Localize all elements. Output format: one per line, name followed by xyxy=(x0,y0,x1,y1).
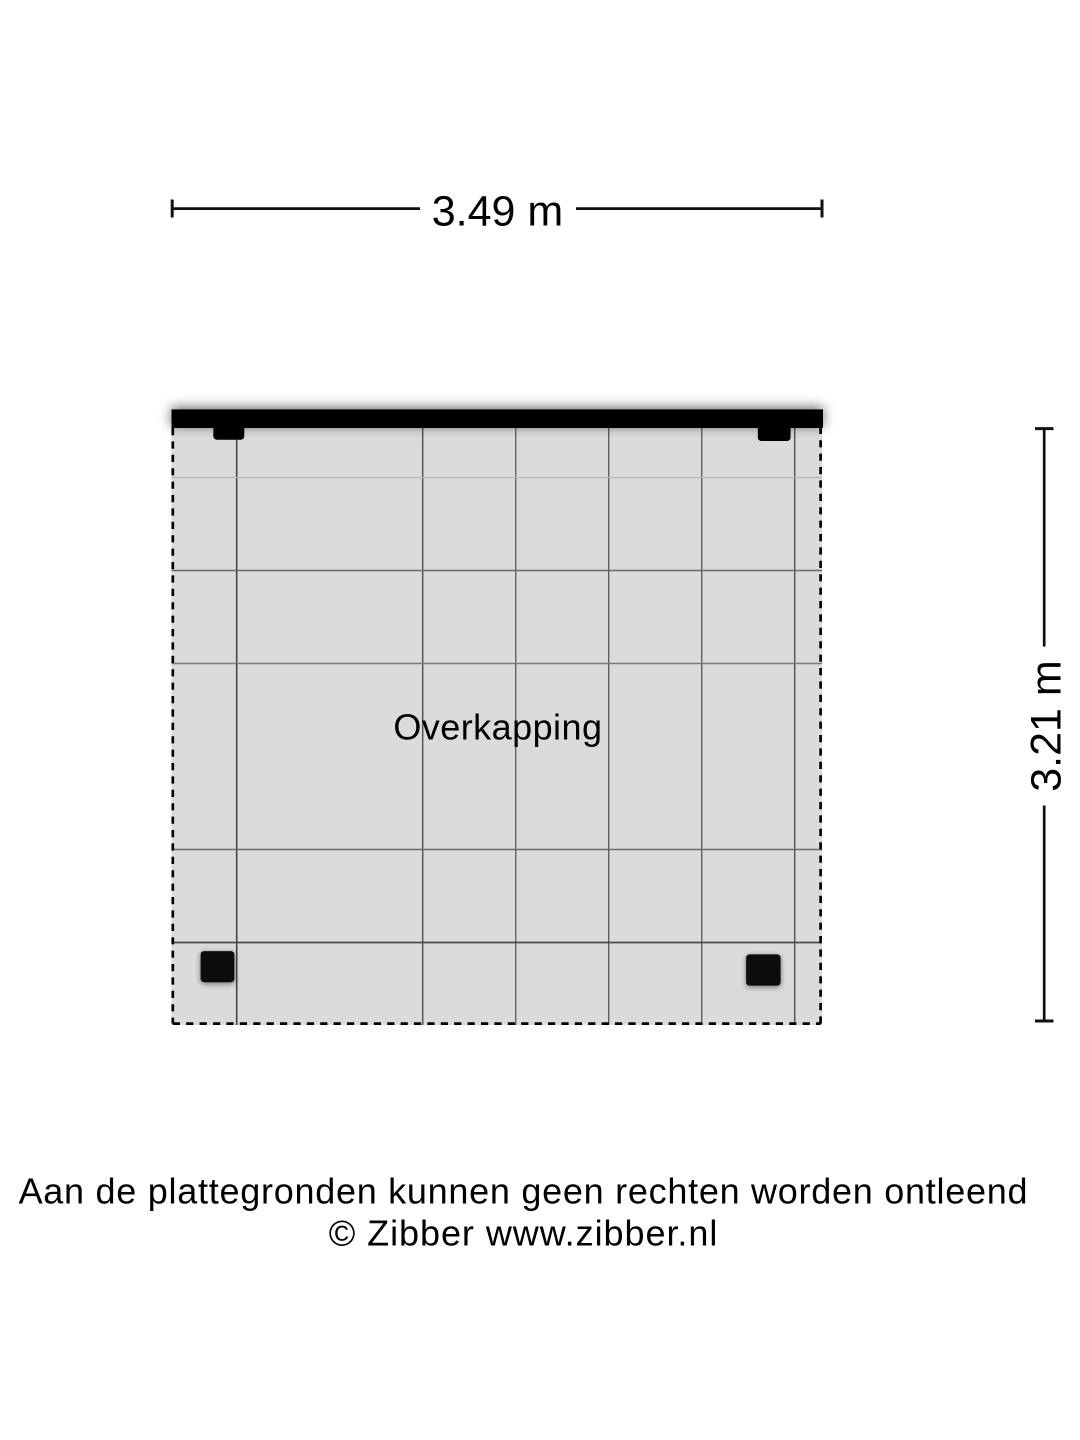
svg-text:3.21 m: 3.21 m xyxy=(1023,660,1071,791)
svg-text:© Zibber www.zibber.nl: © Zibber www.zibber.nl xyxy=(329,1213,719,1254)
svg-text:Overkapping: Overkapping xyxy=(393,707,602,748)
svg-text:3.49 m: 3.49 m xyxy=(432,187,563,235)
svg-text:Aan de plattegronden kunnen ge: Aan de plattegronden kunnen geen rechten… xyxy=(19,1171,1029,1212)
